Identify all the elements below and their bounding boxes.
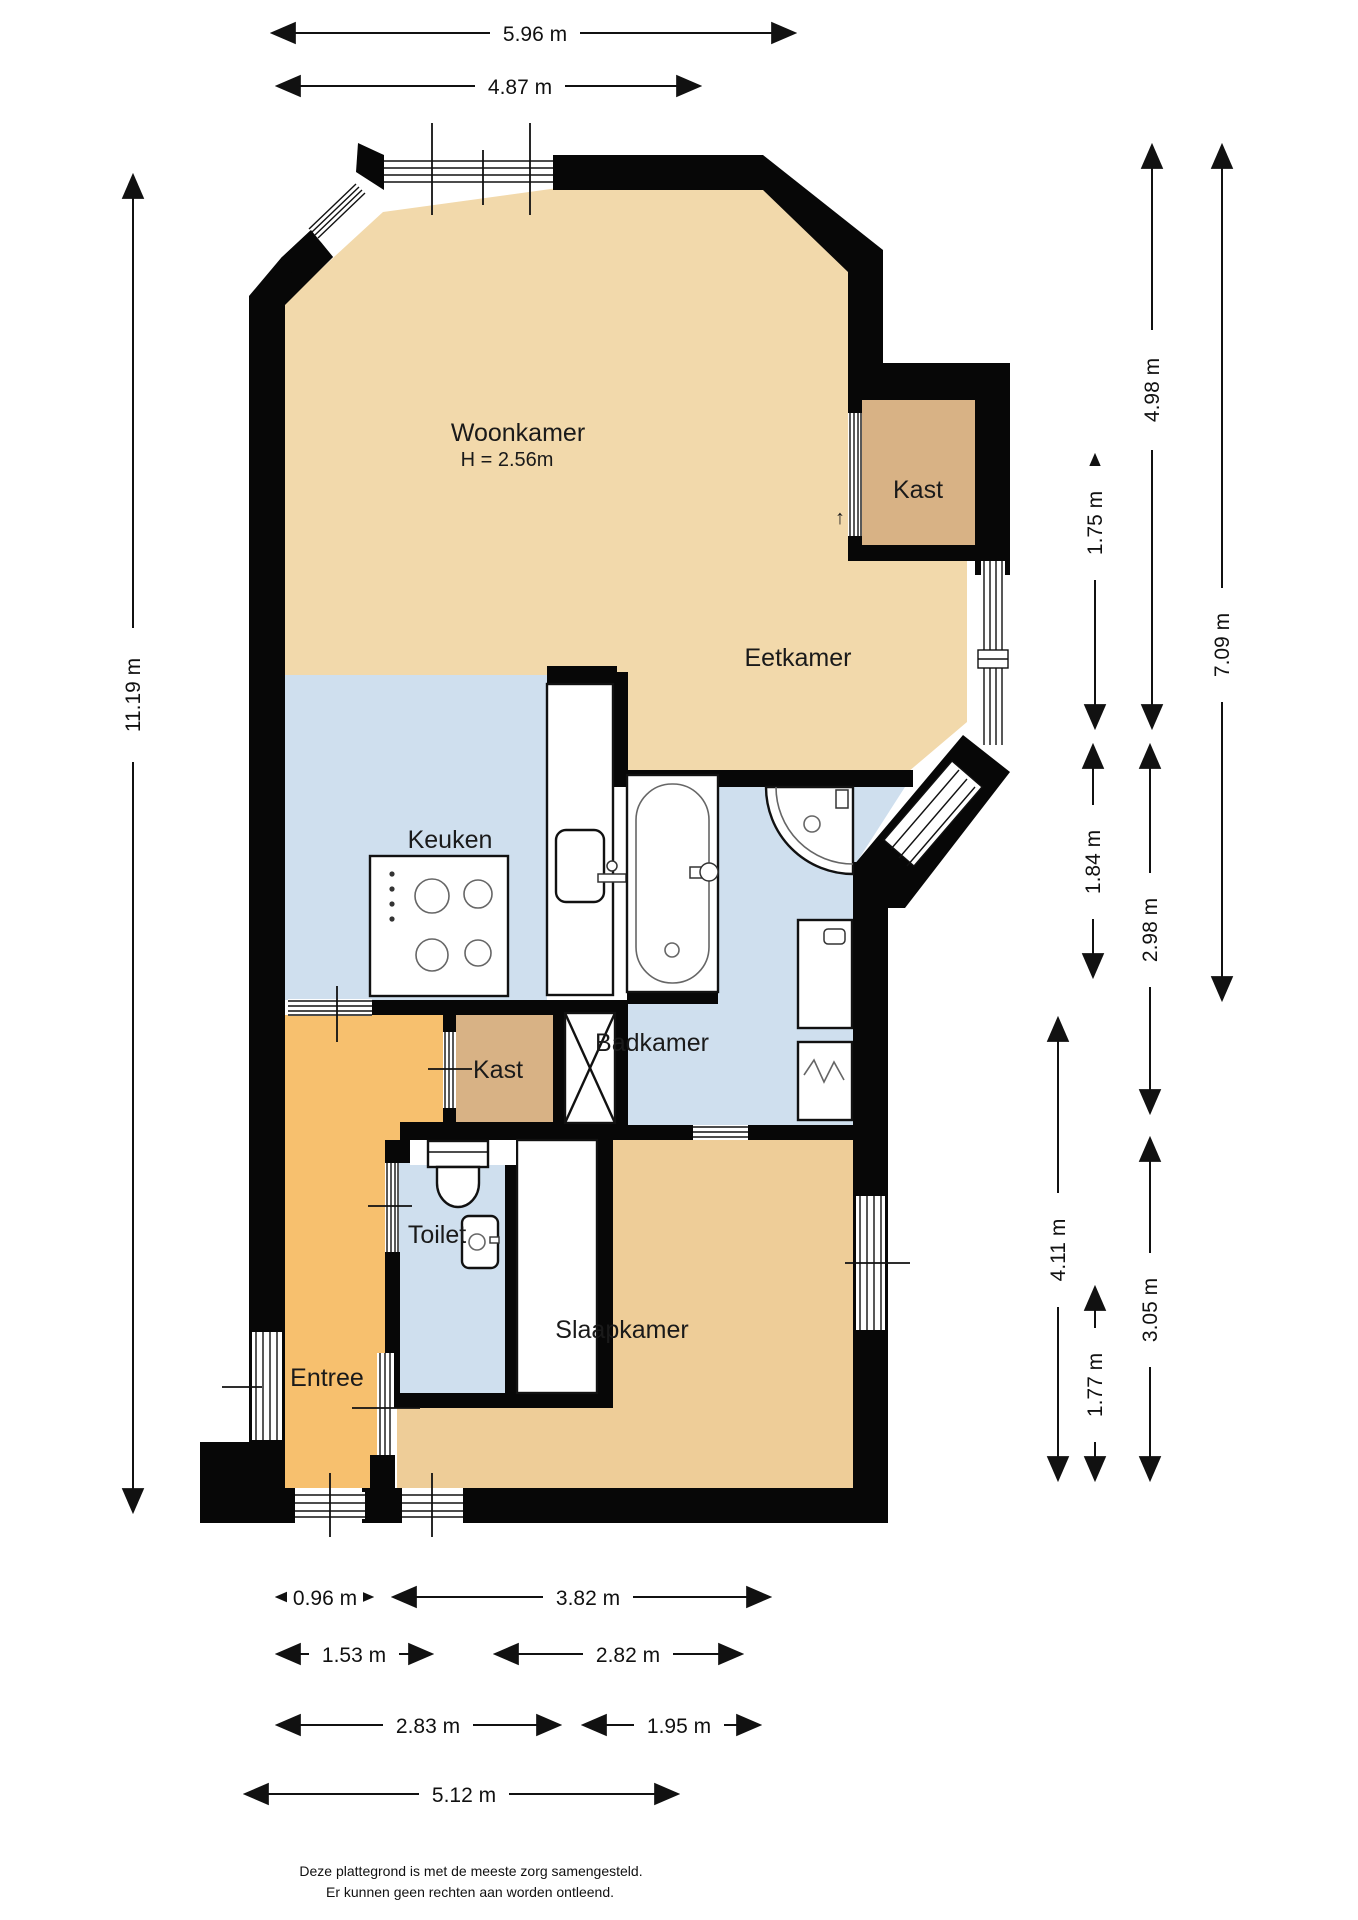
dim-top-596: 5.96 m [272, 18, 795, 48]
label-keuken: Keuken [408, 826, 493, 854]
disclaimer-line-1: Deze plattegrond is met de meeste zorg s… [299, 1863, 642, 1879]
door-direction-icon: ↑ [835, 507, 845, 529]
svg-text:1.84 m: 1.84 m [1082, 830, 1105, 894]
footer-disclaimer: Deze plattegrond is met de meeste zorg s… [299, 1863, 642, 1900]
label-kast-boven: Kast [893, 476, 943, 504]
label-toilet: Toilet [408, 1221, 466, 1249]
svg-text:1.75 m: 1.75 m [1084, 491, 1107, 555]
dim-bottom-382: 3.82 m [393, 1582, 770, 1612]
svg-text:2.98 m: 2.98 m [1139, 898, 1162, 962]
svg-text:3.05 m: 3.05 m [1139, 1278, 1162, 1342]
kitchen-faucet-icon [598, 874, 626, 882]
kitchen-sink [556, 830, 604, 902]
svg-text:2.83 m: 2.83 m [396, 1715, 460, 1738]
bathtub [627, 775, 718, 992]
boiler [798, 1042, 852, 1120]
dim-right-175: 1.75 m [1080, 455, 1110, 728]
label-eetkamer: Eetkamer [745, 644, 852, 672]
kitchen-counter [547, 684, 626, 995]
door-kast-boven [848, 413, 862, 536]
svg-text:1.77 m: 1.77 m [1084, 1353, 1107, 1417]
door-entree-slaapkamer [377, 1353, 394, 1455]
svg-text:0.96 m: 0.96 m [293, 1587, 357, 1610]
room-kast-boven [861, 400, 975, 545]
stove [370, 856, 508, 996]
dim-top-487: 4.87 m [277, 71, 700, 101]
label-kast-hal: Kast [473, 1056, 523, 1084]
label-slaapkamer: Slaapkamer [555, 1316, 688, 1344]
floor-plan: Woonkamer H = 2.56m Eetkamer Kast Keuken… [0, 0, 1358, 1920]
dim-right-177: 1.77 m [1080, 1287, 1110, 1480]
window-eetkamer-right [978, 561, 1008, 745]
door-badkamer [693, 1125, 748, 1140]
label-woonkamer-height: H = 2.56m [461, 449, 554, 471]
dim-right-411: 4.11 m [1043, 1018, 1073, 1480]
label-badkamer: Badkamer [595, 1029, 709, 1057]
label-entree: Entree [290, 1364, 364, 1392]
svg-text:1.95 m: 1.95 m [647, 1715, 711, 1738]
svg-text:5.12 m: 5.12 m [432, 1784, 496, 1807]
svg-text:5.96 m: 5.96 m [503, 23, 567, 46]
window-bay-top [356, 143, 553, 190]
label-woonkamer: Woonkamer [451, 419, 585, 447]
dim-right-298: 2.98 m [1135, 745, 1165, 1113]
window-entree-left [252, 1332, 282, 1440]
door-keuken-schuifdeur [288, 999, 372, 1016]
door-kast-hal [443, 1032, 456, 1108]
dim-right-305: 3.05 m [1135, 1138, 1165, 1480]
svg-text:1.53 m: 1.53 m [322, 1644, 386, 1667]
dim-bottom-512: 5.12 m [245, 1779, 678, 1809]
dim-right-709: 7.09 m [1207, 145, 1237, 1000]
dim-right-184: 1.84 m [1078, 745, 1108, 977]
svg-text:4.11 m: 4.11 m [1047, 1219, 1070, 1282]
svg-text:11.19 m: 11.19 m [122, 658, 145, 732]
washing-machine [798, 920, 852, 1028]
dim-left-1119: 11.19 m [118, 175, 148, 1512]
door-toilet [385, 1163, 399, 1252]
svg-text:4.87 m: 4.87 m [488, 76, 552, 99]
toilet-sink [462, 1216, 499, 1268]
svg-text:3.82 m: 3.82 m [556, 1587, 620, 1610]
dim-bottom-195: 1.95 m [583, 1710, 760, 1740]
svg-text:2.82 m: 2.82 m [596, 1644, 660, 1667]
closet-strip [517, 1140, 597, 1393]
svg-text:7.09 m: 7.09 m [1211, 613, 1234, 677]
dim-bottom-283: 2.83 m [277, 1710, 560, 1740]
dim-bottom-096: 0.96 m [277, 1582, 372, 1612]
disclaimer-line-2: Er kunnen geen rechten aan worden ontlee… [326, 1884, 614, 1900]
dim-bottom-153: 1.53 m [277, 1639, 432, 1669]
dim-right-498: 4.98 m [1137, 145, 1167, 728]
svg-text:4.98 m: 4.98 m [1141, 358, 1164, 422]
dim-bottom-282: 2.82 m [495, 1639, 742, 1669]
